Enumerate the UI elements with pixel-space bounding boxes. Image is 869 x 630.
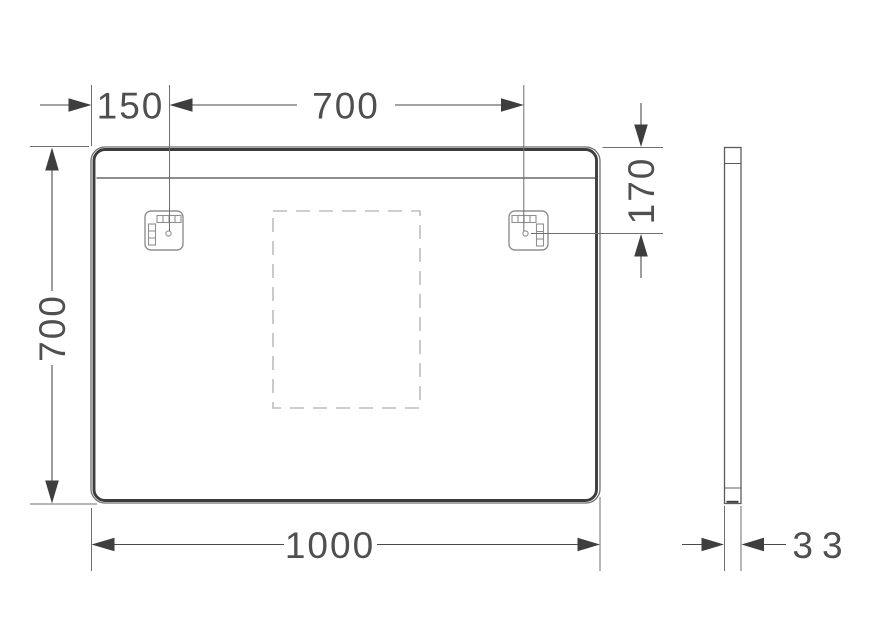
arrow-right-icon — [578, 538, 601, 552]
arrow-down-icon — [634, 125, 648, 148]
arrow-right-icon — [501, 98, 524, 112]
arrow-up-icon — [45, 148, 59, 171]
arrow-left-icon — [92, 538, 115, 552]
arrow-left-icon — [170, 98, 193, 112]
dimension-label-700-top: 700 — [312, 86, 380, 127]
side-profile — [725, 148, 742, 504]
side-view — [725, 148, 742, 504]
dimension-drawing: 150 700 700 170 1000 — [0, 0, 869, 630]
dimension-left-height: 700 — [30, 147, 97, 505]
arrow-down-icon — [45, 481, 59, 504]
dimension-label-1000: 1000 — [285, 525, 375, 566]
dimension-side-depth: 33 — [682, 506, 852, 571]
arrow-left-icon — [742, 538, 765, 552]
mounting-bracket-left — [145, 211, 183, 250]
arrow-up-icon — [634, 234, 648, 257]
arrow-right-icon — [702, 538, 725, 552]
drawing-svg: 150 700 700 170 1000 — [0, 0, 869, 630]
dimension-bottom-width: 1000 — [92, 497, 601, 571]
arrow-right-icon — [69, 98, 92, 112]
bracket-body — [509, 211, 548, 250]
dimension-label-33: 33 — [792, 525, 851, 566]
dimension-label-150: 150 — [97, 86, 165, 127]
dimension-label-170: 170 — [621, 157, 662, 225]
dimension-label-700-left: 700 — [32, 294, 73, 362]
mounting-bracket-right — [509, 211, 548, 250]
